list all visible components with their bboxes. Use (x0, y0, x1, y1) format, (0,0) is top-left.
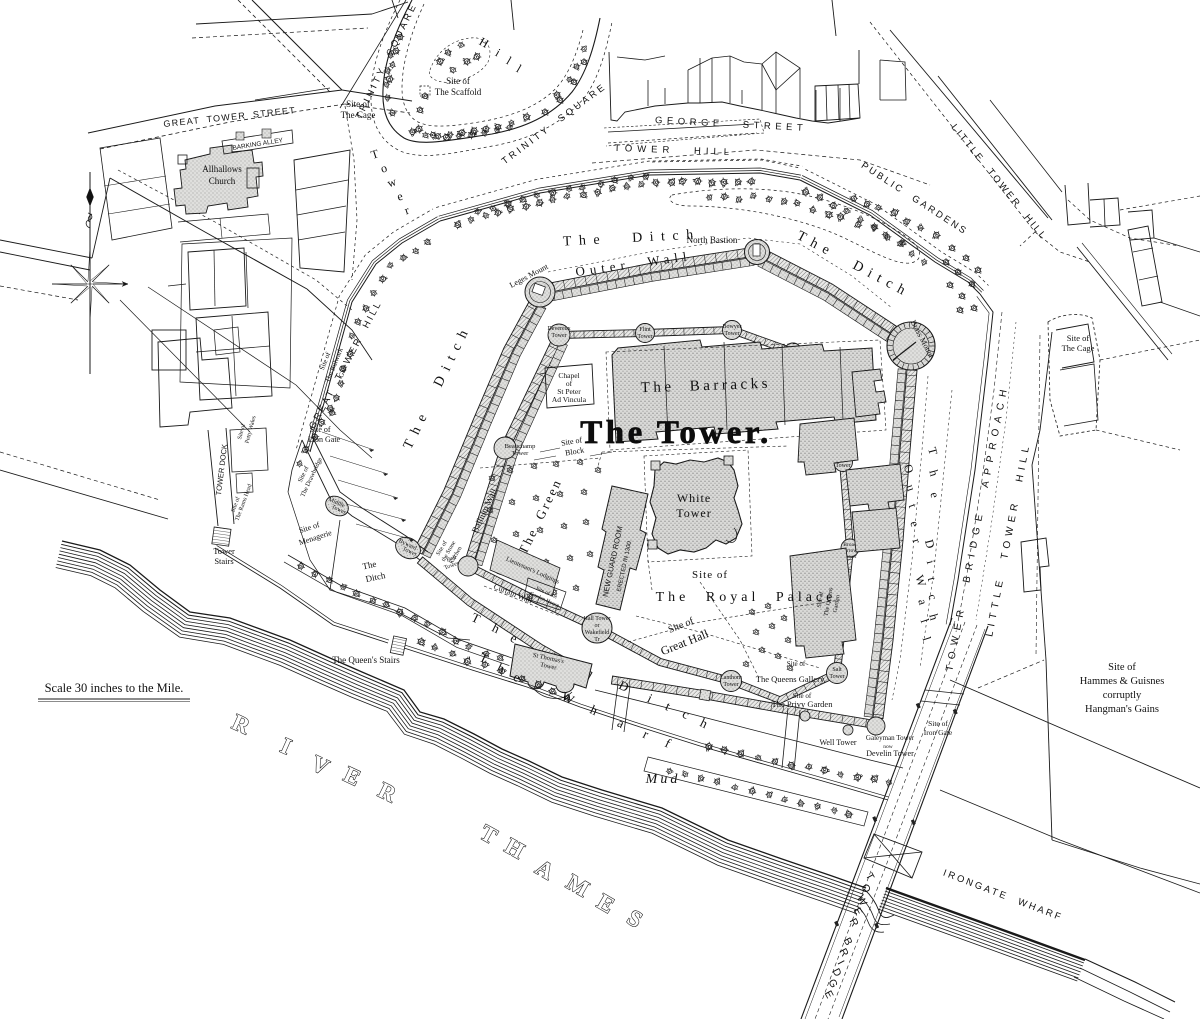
svg-text:E: E (593, 889, 619, 918)
svg-text:Ditch: Ditch (365, 570, 387, 584)
svg-text:North Bastion: North Bastion (687, 235, 738, 245)
svg-text:Salt: Salt (832, 667, 842, 673)
svg-text:h: h (490, 620, 503, 637)
svg-text:The Privy Garden: The Privy Garden (772, 699, 834, 709)
svg-text:White: White (677, 491, 711, 505)
svg-text:Tower: Tower (829, 674, 844, 680)
svg-text:The Tower.: The Tower. (580, 415, 772, 451)
svg-text:h: h (698, 715, 711, 732)
svg-text:e: e (927, 491, 942, 500)
svg-text:r: r (403, 203, 411, 218)
svg-text:Hammes & Guisnes: Hammes & Guisnes (1080, 676, 1165, 687)
svg-text:S: S (623, 905, 647, 933)
svg-text:e: e (395, 189, 404, 204)
svg-text:The Royal Palace: The Royal Palace (656, 590, 837, 605)
svg-text:T: T (863, 871, 877, 883)
svg-text:TOWER BRIDGE APPROACH: TOWER BRIDGE APPROACH (944, 383, 1011, 672)
svg-text:R: R (847, 916, 861, 929)
svg-text:The: The (361, 559, 377, 572)
svg-text:Site of: Site of (446, 76, 470, 86)
svg-text:E: E (822, 989, 836, 1001)
svg-text:l: l (920, 635, 935, 643)
svg-text:Beauchamp: Beauchamp (505, 443, 536, 450)
svg-text:Hall Tower: Hall Tower (584, 616, 611, 622)
svg-text:Tower: Tower (551, 333, 566, 339)
svg-text:Tower: Tower (723, 682, 738, 688)
svg-text:A: A (531, 855, 558, 885)
svg-text:i: i (924, 559, 939, 566)
svg-text:i: i (493, 46, 503, 60)
svg-text:l: l (514, 62, 524, 76)
svg-text:Site of: Site of (787, 660, 806, 668)
svg-text:T: T (469, 609, 483, 626)
svg-text:R: R (374, 777, 400, 807)
svg-text:GEORGE STREET: GEORGE STREET (655, 115, 808, 134)
svg-text:Allhallows: Allhallows (202, 164, 242, 174)
svg-text:Lanthorn: Lanthorn (720, 675, 742, 681)
svg-text:Mud: Mud (645, 772, 681, 787)
svg-text:o: o (379, 161, 389, 176)
svg-text:Tower: Tower (512, 450, 529, 457)
svg-text:R: R (837, 946, 851, 959)
svg-text:or: or (595, 623, 600, 629)
svg-text:I: I (277, 733, 295, 759)
svg-text:The Scaffold: The Scaffold (435, 87, 482, 97)
svg-text:r: r (641, 726, 652, 742)
svg-text:The Ditch: The Ditch (401, 321, 475, 451)
svg-text:V: V (307, 750, 333, 780)
svg-text:f: f (663, 735, 674, 751)
svg-text:Ad Vincula: Ad Vincula (552, 395, 587, 404)
svg-text:Wakefield: Wakefield (585, 629, 610, 636)
svg-text:T: T (476, 820, 502, 849)
svg-text:e: e (907, 519, 922, 528)
svg-text:Bowyer: Bowyer (723, 324, 742, 330)
svg-text:Tower: Tower (637, 334, 652, 340)
svg-text:Devereux: Devereux (547, 326, 570, 332)
svg-text:Tower: Tower (724, 331, 739, 337)
svg-text:h: h (926, 468, 941, 477)
svg-text:The Ditch: The Ditch (563, 227, 701, 249)
svg-text:Tower: Tower (676, 506, 711, 520)
svg-text:Develin Tower: Develin Tower (866, 749, 914, 758)
svg-text:h: h (495, 660, 508, 677)
svg-text:Site of: Site of (692, 569, 728, 581)
svg-text:w: w (385, 174, 398, 190)
svg-text:R: R (228, 709, 254, 739)
svg-text:The Green: The Green (515, 476, 565, 557)
svg-text:H: H (501, 833, 529, 864)
svg-text:Well Tower: Well Tower (819, 738, 856, 747)
svg-text:corruptly: corruptly (1103, 690, 1142, 701)
svg-text:Site of: Site of (1108, 662, 1136, 673)
svg-text:t: t (906, 502, 921, 510)
svg-text:T: T (925, 446, 941, 457)
svg-text:Great Hall: Great Hall (659, 626, 712, 658)
svg-text:Flint: Flint (639, 327, 651, 333)
svg-text:T: T (369, 146, 381, 162)
svg-text:E: E (340, 762, 364, 791)
svg-text:c: c (925, 593, 940, 602)
svg-text:H: H (477, 34, 492, 51)
svg-text:The Cage: The Cage (1062, 343, 1095, 353)
svg-text:h: h (926, 612, 941, 621)
svg-text:Tr: Tr (594, 637, 599, 643)
svg-text:t: t (663, 698, 673, 713)
svg-text:Church: Church (209, 176, 236, 186)
svg-text:GREAT TOWER STREET: GREAT TOWER STREET (163, 105, 297, 129)
svg-text:Block: Block (564, 445, 584, 457)
svg-text:M: M (562, 869, 594, 902)
svg-text:Site of: Site of (1067, 333, 1090, 343)
svg-text:The Cage: The Cage (341, 110, 376, 120)
svg-text:Tower: Tower (835, 463, 850, 469)
svg-text:l: l (504, 54, 514, 68)
svg-text:Site of: Site of (346, 99, 370, 109)
svg-text:Scale 30 inches to the Mile.: Scale 30 inches to the Mile. (45, 681, 184, 695)
svg-text:Hangman's Gains: Hangman's Gains (1085, 704, 1159, 715)
svg-text:TOWER DOCK: TOWER DOCK (214, 444, 229, 496)
svg-text:TOWER HILL: TOWER HILL (614, 143, 734, 158)
svg-text:The Queens Gallery: The Queens Gallery (756, 674, 825, 684)
